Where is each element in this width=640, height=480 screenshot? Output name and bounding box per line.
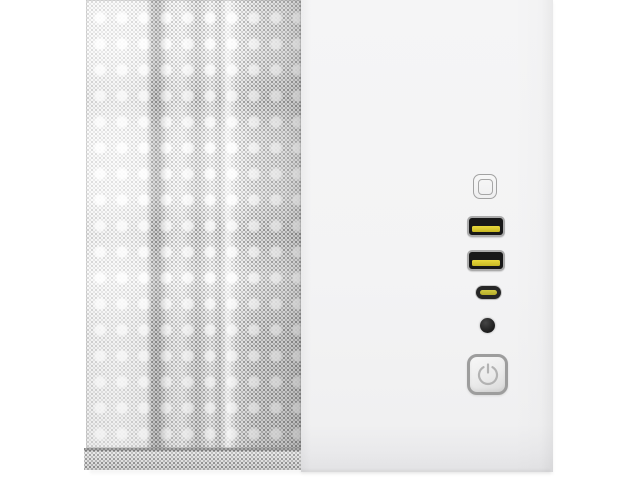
mesh-front-panel [86,0,302,448]
usb-c-port [476,286,501,299]
pc-case-product-photo [0,0,640,480]
usb-a-yellow-tongue [472,226,500,232]
front-io-panel [301,0,553,472]
ground-shadow [90,470,550,475]
led-button-inner-square-icon [478,179,493,195]
power-icon [476,363,500,387]
led-control-button [473,174,497,199]
usb-c-slot [480,290,497,295]
usb-a-port-top [467,216,505,237]
power-button [467,354,508,395]
usb-a-port-bottom [467,250,505,271]
usb-a-yellow-tongue [472,260,500,266]
audio-jack [480,318,495,333]
mesh-bottom-strip [84,448,302,470]
